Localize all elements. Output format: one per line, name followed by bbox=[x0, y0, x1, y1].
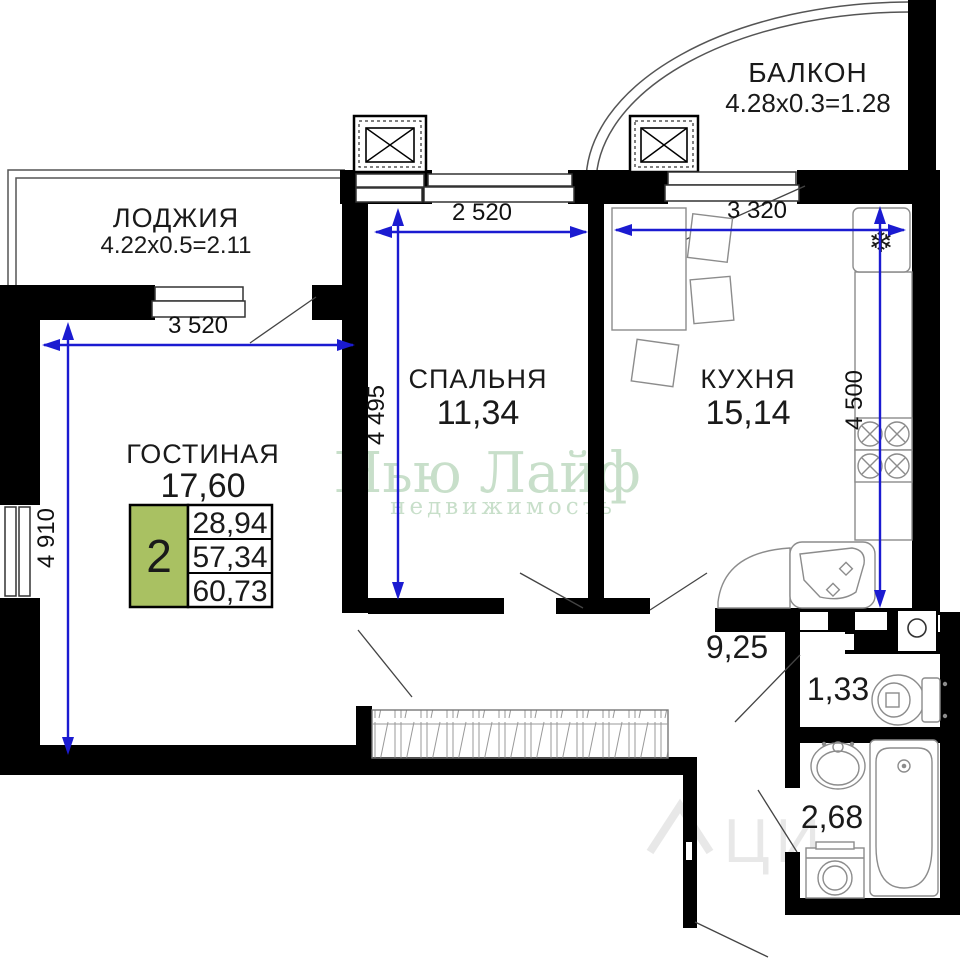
kitchen-label: КУХНЯ bbox=[700, 364, 795, 394]
kitchen-table bbox=[612, 208, 686, 330]
agency-watermark-line2: недвижимость bbox=[390, 494, 616, 520]
living-area: 17,60 bbox=[160, 467, 245, 505]
loggia-dims: 4.22x0.5=2.11 bbox=[100, 232, 251, 259]
hallway-area: 9,25 bbox=[706, 629, 768, 665]
bedroom-area: 11,34 bbox=[437, 394, 520, 432]
vent-shaft-left bbox=[354, 116, 426, 172]
toilet-tank bbox=[922, 678, 940, 722]
entry-door-swing bbox=[695, 922, 768, 957]
bathroom-area: 2,68 bbox=[801, 799, 863, 835]
toilet-bowl bbox=[872, 675, 924, 725]
info-table: 2 28,94 57,34 60,73 bbox=[130, 505, 272, 608]
loggia-door-swing bbox=[250, 297, 316, 343]
living-window bbox=[5, 507, 16, 596]
dim-kitchen-height: 4 500 bbox=[841, 370, 868, 430]
hob-bottom bbox=[855, 450, 912, 482]
chair bbox=[687, 214, 732, 263]
info-table-row1: 28,94 bbox=[192, 507, 267, 540]
dim-bedroom-width: 2 520 bbox=[452, 199, 512, 226]
door-handle-notch bbox=[686, 842, 692, 860]
counter-curve bbox=[718, 548, 790, 608]
chair bbox=[631, 339, 678, 386]
bathroom-sink bbox=[811, 743, 865, 789]
wc-fixtures bbox=[872, 675, 947, 725]
dim-kitchen-width: 3 320 bbox=[727, 197, 787, 224]
loggia-label: ЛОДЖИЯ bbox=[113, 203, 239, 233]
washing-machine-top bbox=[816, 842, 854, 849]
info-table-row3: 60,73 bbox=[192, 575, 267, 608]
balcony-dims: 4.28x0.3=1.28 bbox=[725, 88, 891, 118]
living-label: ГОСТИНАЯ bbox=[126, 439, 280, 469]
kitchen-door-swing bbox=[650, 573, 707, 610]
chair bbox=[690, 276, 734, 323]
dim-bedroom-height: 4 495 bbox=[363, 385, 390, 445]
dim-loggia-width: 3 520 bbox=[168, 312, 228, 339]
bedroom-label: СПАЛЬНЯ bbox=[409, 364, 548, 394]
kitchen-area: 15,14 bbox=[705, 394, 790, 432]
balcony-label: БАЛКОН bbox=[748, 57, 867, 88]
floorplan: ЦИ Нью Лайф недвижимость bbox=[0, 0, 960, 960]
bedroom-window bbox=[428, 174, 572, 186]
loggia-window bbox=[155, 287, 243, 301]
dim-living-height: 4 910 bbox=[33, 508, 60, 568]
vent-box bbox=[897, 610, 937, 652]
wardrobe-leader bbox=[358, 630, 412, 697]
sill-under-shaft bbox=[356, 174, 424, 187]
info-table-room-count: 2 bbox=[146, 530, 172, 582]
faint-watermark-house-icon bbox=[650, 806, 710, 852]
wc-area: 1,33 bbox=[807, 671, 869, 707]
sill-under-shaft-2 bbox=[356, 188, 422, 202]
living-window-2 bbox=[19, 507, 30, 596]
wardrobe bbox=[372, 710, 668, 758]
vent-shaft-right bbox=[630, 116, 698, 172]
bedroom-door-swing bbox=[520, 573, 583, 608]
balcony-door-sill bbox=[668, 172, 796, 185]
info-table-row2: 57,34 bbox=[192, 541, 267, 574]
